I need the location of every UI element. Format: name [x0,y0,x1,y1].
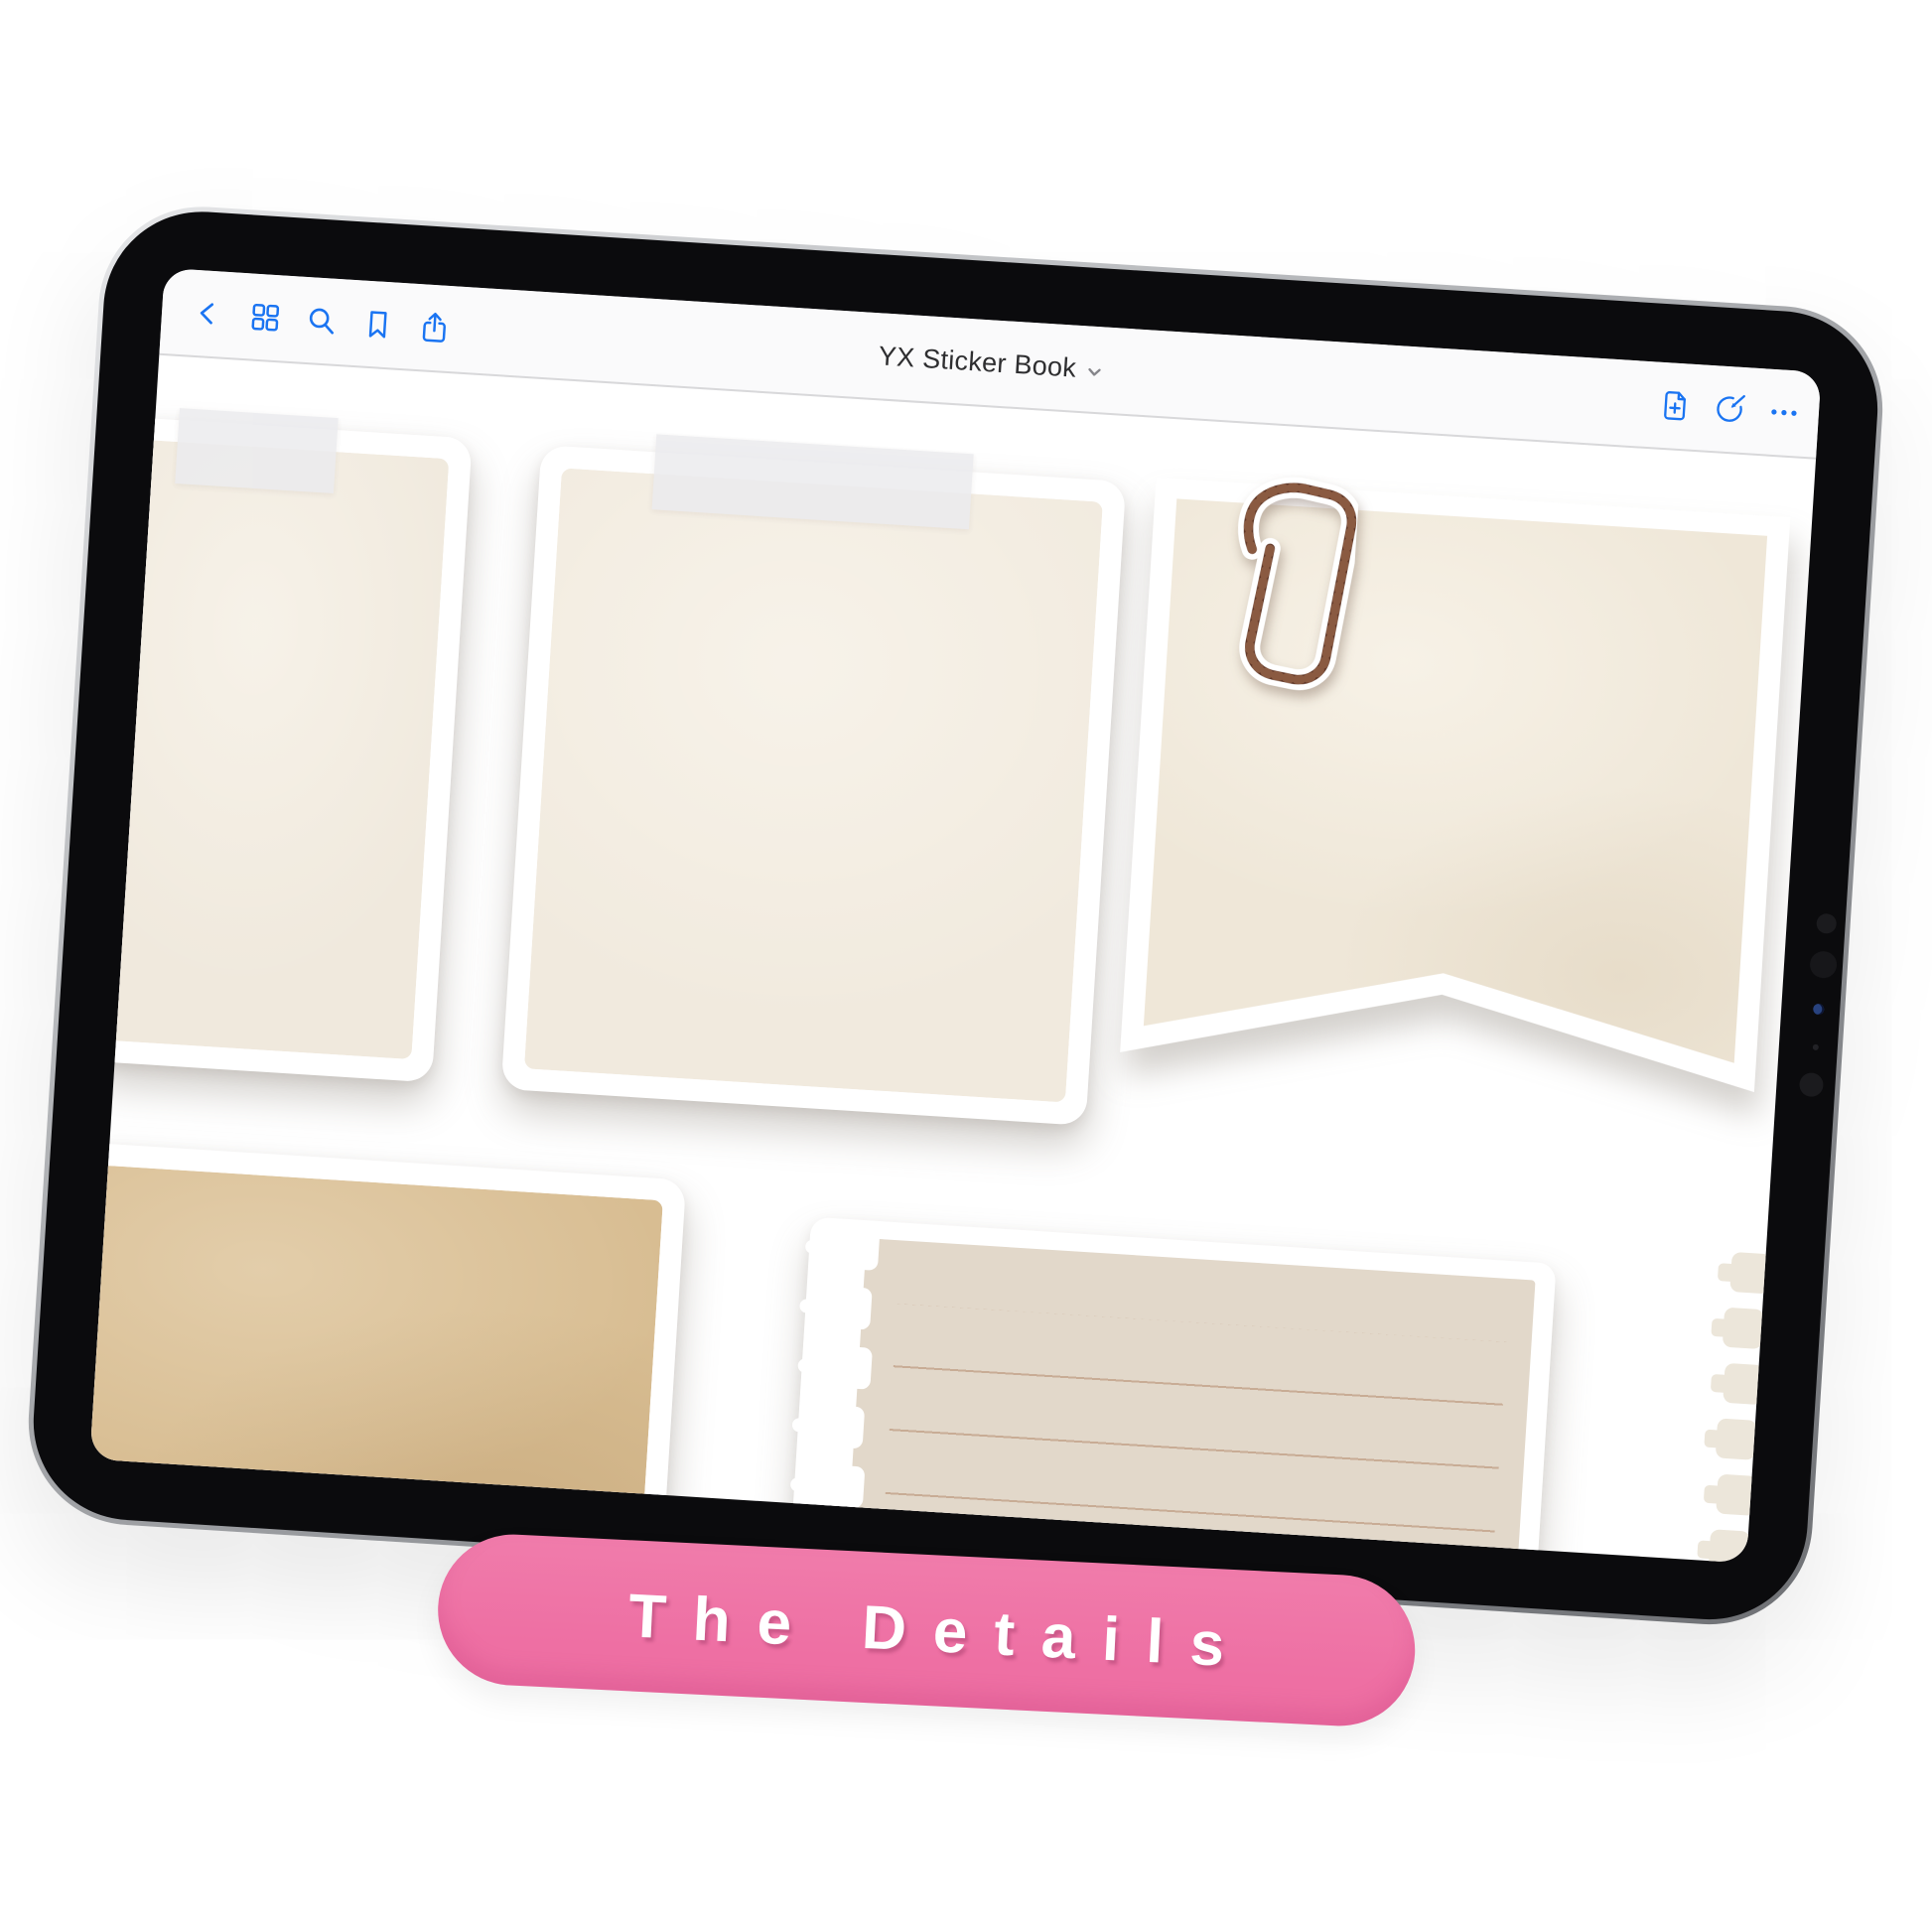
share-button[interactable] [412,306,457,350]
tablet-screen: YX Sticker Book [89,268,1821,1564]
sticker-taped-note[interactable] [501,445,1127,1126]
bookmark-icon [360,306,396,342]
bookmark-button[interactable] [355,302,400,346]
markup-icon [1712,391,1747,427]
paper-fill [108,440,449,1059]
washi-tape [175,408,338,493]
search-button[interactable] [300,299,345,344]
markup-button[interactable] [1708,387,1752,432]
page-thumbnails-button[interactable] [243,295,288,340]
grid-icon [247,299,283,335]
torn-edge [784,1218,922,1523]
back-button[interactable] [187,291,231,336]
page-background: { "window": { "title": "YX Sticker Book"… [0,0,1932,1932]
chevron-down-icon [1085,363,1102,380]
search-icon [304,303,340,339]
chevron-left-icon [191,296,226,332]
paper-fill [524,468,1103,1102]
paperclip-sticker[interactable] [1227,455,1361,704]
add-page-button[interactable] [1653,383,1698,428]
document-title: YX Sticker Book [878,341,1077,383]
more-button[interactable] [1762,390,1807,435]
sticker-flag-banner[interactable] [1120,478,1790,1092]
banner-label: The Details [600,1580,1252,1682]
tablet-device: YX Sticker Book [22,201,1888,1630]
sticker-notebook-paper[interactable] [756,1214,1557,1550]
add-page-icon [1657,388,1693,424]
share-icon [417,310,453,345]
document-title-group[interactable]: YX Sticker Book [876,313,1105,412]
ellipsis-icon [1766,395,1802,431]
